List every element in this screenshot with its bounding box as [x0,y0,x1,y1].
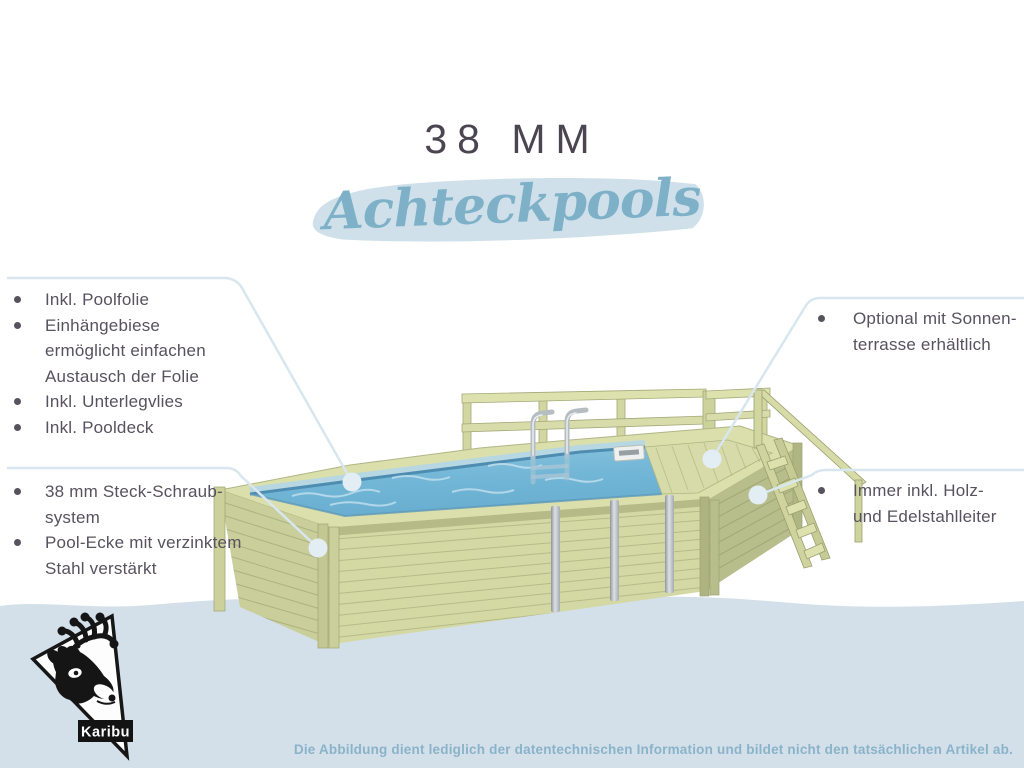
bullet-dot [14,296,21,303]
logo-wordmark: Karibu [81,725,130,741]
feature-line: Inkl. Unterlegvlies [45,389,183,415]
bullet-dot [14,539,21,546]
feature-item: Optional mit Sonnen- terrasse erhältlich [818,306,1024,357]
callout-dot-terrasse [703,450,722,469]
karibu-logo: Karibu [28,606,140,764]
feature-list-top-left: Inkl. Poolfolie Einhängebiese ermöglicht… [14,287,264,440]
feature-line: Einhängebiese [45,313,206,339]
headline-size: 38 MM [0,116,1024,163]
headline-script-wrap: Achteckpools [299,164,725,253]
feature-item: Pool-Ecke mit verzinktem Stahl verstärkt [14,530,274,581]
bullet-dot [14,322,21,329]
feature-item: Inkl. Pooldeck [14,415,264,441]
feature-item: Einhängebiese ermöglicht einfachen Austa… [14,313,264,390]
bullet-dot [14,398,21,405]
feature-line: Immer inkl. Holz- [853,478,997,504]
disclaimer-text: Die Abbildung dient lediglich der datent… [294,742,1013,757]
feature-item: Inkl. Poolfolie [14,287,264,313]
feature-item: Immer inkl. Holz- und Edelstahlleiter [818,478,1024,529]
feature-list-top-right: Optional mit Sonnen- terrasse erhältlich [818,306,1024,357]
feature-line: Optional mit Sonnen- [853,306,1017,332]
bullet-dot [818,315,825,322]
feature-line: system [45,505,223,531]
headline-script: Achteckpools [299,160,726,256]
callout-dot-leiter [749,486,768,505]
bullet-dot [14,424,21,431]
feature-line: ermöglicht einfachen [45,338,206,364]
feature-item: 38 mm Steck-Schraub- system [14,479,274,530]
feature-line: terrasse erhältlich [853,332,1017,358]
feature-line: und Edelstahlleiter [853,504,997,530]
callout-dot-poolfolie [343,473,362,492]
callout-dot-ecke [309,539,328,558]
feature-list-bottom-right: Immer inkl. Holz- und Edelstahlleiter [818,478,1024,529]
bullet-dot [14,488,21,495]
slide-canvas: 38 MM Achteckpools Inkl. Poolfolie Einhä… [0,0,1024,768]
feature-line: Inkl. Pooldeck [45,415,154,441]
feature-list-bottom-left: 38 mm Steck-Schraub- system Pool-Ecke mi… [14,479,274,581]
feature-line: Inkl. Poolfolie [45,287,149,313]
bullet-dot [818,487,825,494]
feature-item: Inkl. Unterlegvlies [14,389,264,415]
feature-line: 38 mm Steck-Schraub- [45,479,223,505]
feature-line: Austausch der Folie [45,364,206,390]
skimmer [614,445,645,461]
feature-line: Pool-Ecke mit verzinktem [45,530,242,556]
feature-line: Stahl verstärkt [45,556,242,582]
